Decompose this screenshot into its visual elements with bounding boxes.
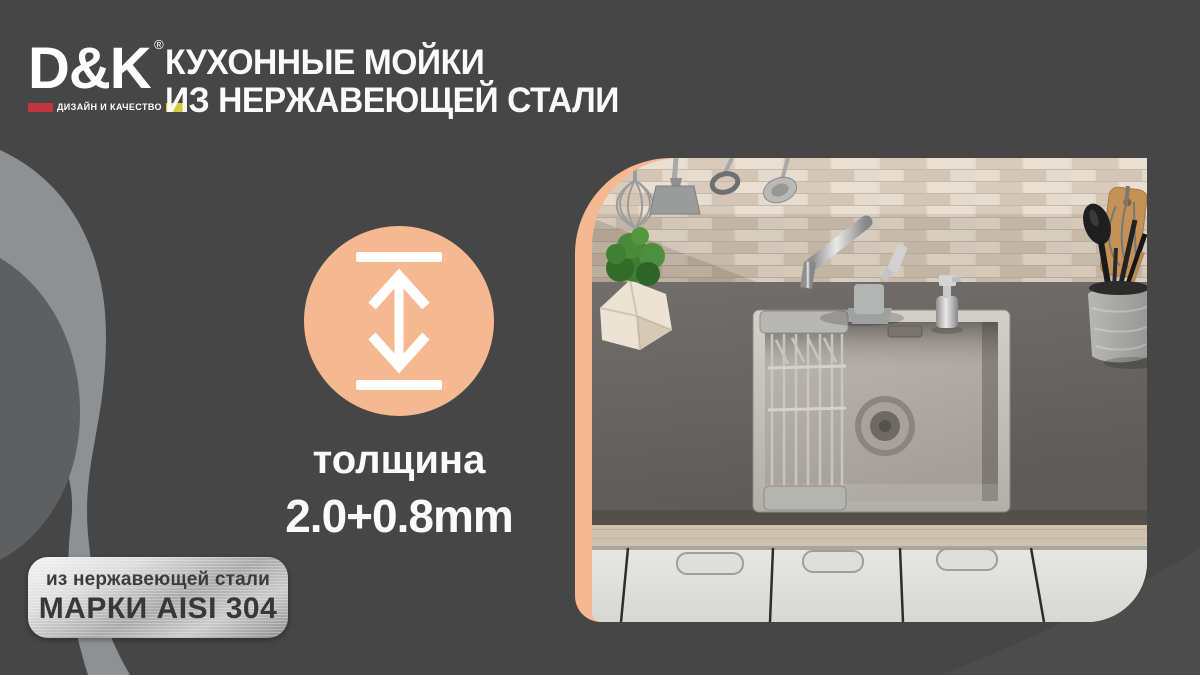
badge-line-1: из нержавеющей стали [46,569,270,591]
feature-circle [304,226,494,416]
kitchen-scene-illustration [592,158,1147,622]
sink [753,310,1010,512]
title-line-2: ИЗ НЕРЖАВЕЮЩЕЙ СТАЛИ [165,82,619,120]
registered-trademark-icon: ® [154,38,163,51]
overflow-slot [888,326,922,337]
thickness-double-arrow-icon [304,226,494,416]
cabinet-drawers [592,546,1147,622]
brand-logo: D&K ® ДИЗАЙН И КАЧЕСТВО [28,40,148,112]
logo-tagline-row: ДИЗАЙН И КАЧЕСТВО [28,102,140,112]
thickness-feature: толщина 2.0+0.8mm [248,226,550,543]
drawer-handles [677,549,997,574]
sink-photo [592,158,1147,622]
rack-bottom-cap [764,486,846,510]
title-line-1: КУХОННЫЕ МОЙКИ [165,44,619,82]
thickness-label: толщина [248,438,550,483]
promo-banner: D&K ® ДИЗАЙН И КАЧЕСТВО КУХОННЫЕ МОЙКИ И… [0,0,1200,675]
drain [855,396,915,456]
photo-panel [575,158,1147,622]
page-title: КУХОННЫЕ МОЙКИ ИЗ НЕРЖАВЕЮЩЕЙ СТАЛИ [165,44,619,120]
badge-line-2: МАРКИ AISI 304 [39,592,278,626]
thickness-value: 2.0+0.8mm [248,489,550,543]
wood-trim [592,525,1147,546]
logo-text: D&K [28,36,151,101]
logo-tagline: ДИЗАЙН И КАЧЕСТВО [57,102,162,112]
logo-red-bar [28,103,53,112]
logo-wordmark: D&K ® [28,40,151,98]
material-badge: из нержавеющей стали МАРКИ AISI 304 [28,557,288,638]
utensil-crock [1088,281,1147,369]
